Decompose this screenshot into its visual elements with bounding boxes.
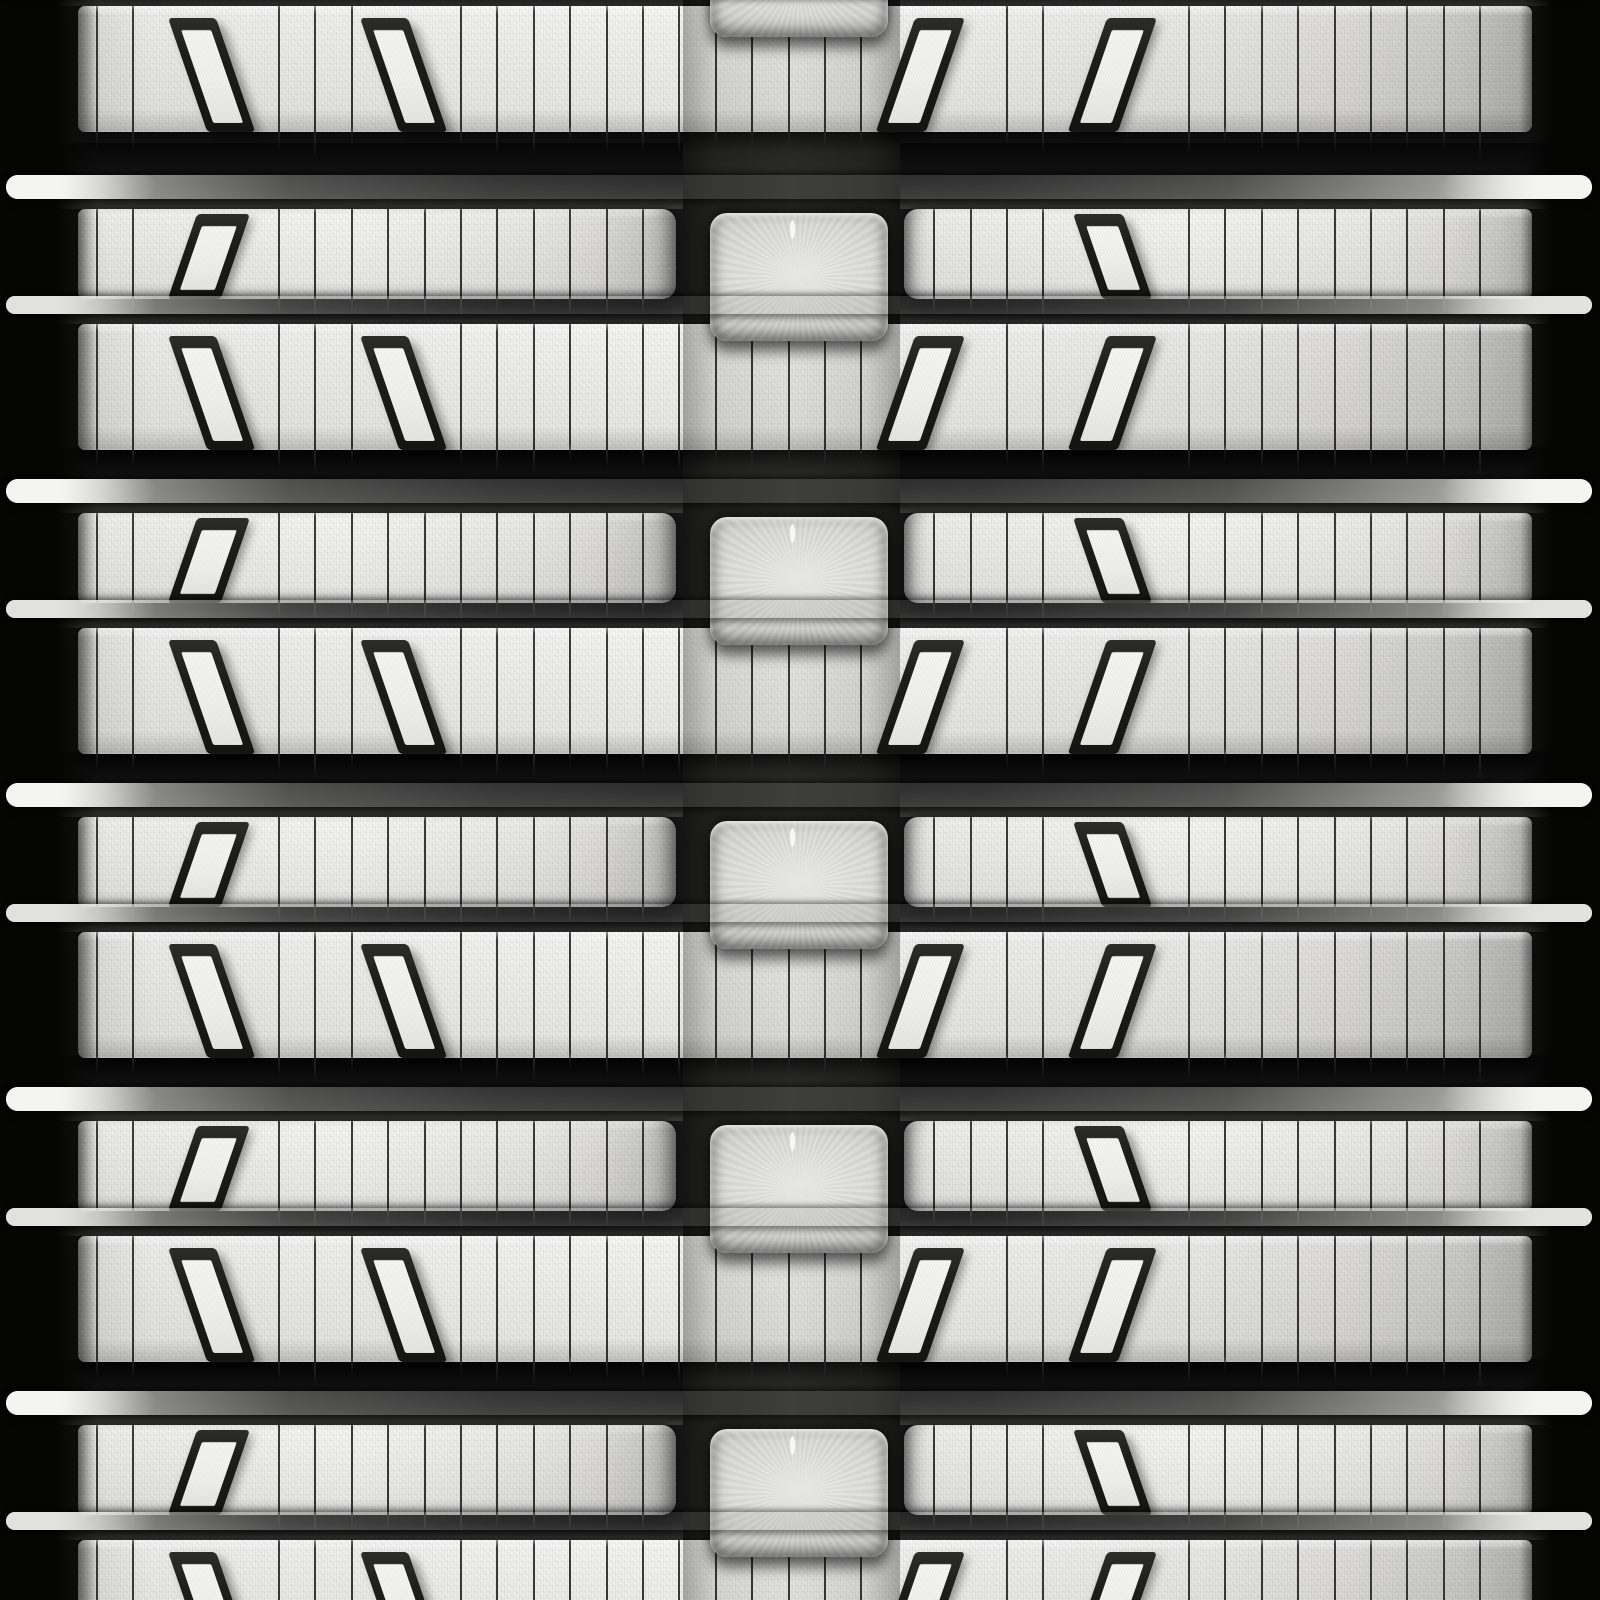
wire-sipe-line: [1006, 616, 1008, 769]
edge-rail-tip-left: [6, 904, 156, 922]
wire-sipe-line: [1370, 924, 1372, 1074]
tread-parallelogram-face: [181, 956, 243, 1049]
tread-parallelogram-cutout: [360, 1248, 447, 1362]
wire-sipe-line: [1479, 1532, 1481, 1600]
wire-sipe-line: [678, 1528, 680, 1600]
wire-sipe-line: [1443, 616, 1445, 772]
tread-parallelogram-face: [1086, 834, 1140, 898]
tread-parallelogram-face: [1080, 1564, 1144, 1600]
edge-rail-tip-left: [6, 479, 156, 503]
lug-edge-rail: [6, 175, 1592, 199]
wire-sipe-line: [569, 920, 571, 1070]
wire-sipe-line: [278, 920, 280, 1076]
rubber-track-photo: [0, 0, 1600, 1600]
wire-sipe-line: [96, 620, 98, 770]
edge-rail-tip-left: [6, 296, 156, 314]
wire-sipe-line: [1370, 620, 1372, 770]
drive-lug-eye-slit: [790, 524, 818, 638]
wire-sipe-line: [715, 924, 717, 1074]
tread-parallelogram-face: [180, 226, 237, 290]
wire-sipe-line: [1443, 1224, 1445, 1380]
wire-sipe-line: [460, 1224, 462, 1377]
wire-sipe-line: [1406, 314, 1408, 467]
wire-sipe-line: [496, 1413, 498, 1527]
track-lug-row-left: [78, 513, 676, 603]
tread-parallelogram-cutout: [1068, 18, 1157, 132]
wire-sipe-line: [533, 314, 535, 473]
wire-sipe-line: [314, 620, 316, 779]
wire-sipe-line: [314, 0, 316, 157]
wire-sipe-line: [1188, 314, 1190, 473]
edge-rail-tip-left: [6, 175, 156, 199]
wire-sipe-line: [496, 620, 498, 776]
wire-sipe-line: [460, 0, 462, 147]
wire-sipe-line: [606, 1532, 608, 1600]
wire-sipe-line: [1479, 924, 1481, 1083]
tread-parallelogram-cutout: [360, 640, 447, 754]
track-lug-row-right: [904, 513, 1532, 603]
wire-sipe-line: [132, 1226, 134, 1379]
wire-sipe-line: [278, 312, 280, 468]
wire-sipe-line: [1006, 312, 1008, 465]
wire-sipe-line: [96, 924, 98, 1074]
wire-sipe-line: [132, 314, 134, 467]
wire-sipe-line: [351, 922, 353, 1072]
wire-sipe-line: [1042, 924, 1044, 1080]
tread-parallelogram-cutout: [168, 822, 250, 907]
wire-sipe-line: [278, 0, 280, 150]
wire-sipe-line: [460, 312, 462, 465]
wire-sipe-line: [1334, 0, 1336, 153]
wire-sipe-line: [1370, 0, 1372, 148]
wire-sipe-line: [1261, 1532, 1263, 1600]
edge-rail-tip-right: [1442, 1391, 1592, 1415]
wire-sipe-line: [314, 316, 316, 475]
tread-parallelogram-face: [373, 348, 435, 441]
track-lug-row-right: [904, 1425, 1532, 1515]
wire-sipe-line: [1334, 312, 1336, 471]
lug-edge-rail: [6, 1512, 1592, 1530]
edge-rail-tip-right: [1442, 1208, 1592, 1226]
tread-parallelogram-face: [1080, 348, 1144, 441]
wire-sipe-line: [1370, 316, 1372, 466]
wire-sipe-line: [1188, 1530, 1190, 1600]
wire-sipe-line: [533, 0, 535, 155]
wire-sipe-line: [1334, 197, 1336, 311]
drive-lug-block: [710, 517, 888, 645]
wire-sipe-line: [278, 1224, 280, 1380]
wire-sipe-line: [278, 1528, 280, 1600]
wire-sipe-line: [1406, 922, 1408, 1075]
wire-sipe-line: [496, 0, 498, 154]
tread-parallelogram-cutout: [168, 18, 255, 132]
wire-sipe-line: [642, 1226, 644, 1382]
wire-sipe-line: [1334, 1528, 1336, 1600]
tread-parallelogram-cutout: [168, 214, 250, 299]
wire-sipe-line: [314, 1532, 316, 1600]
wire-sipe-line: [351, 0, 353, 146]
tread-parallelogram-face: [1086, 1138, 1140, 1202]
tread-parallelogram-face: [1080, 30, 1144, 123]
wire-sipe-line: [1443, 1528, 1445, 1600]
tread-parallelogram-face: [180, 530, 237, 594]
lug-edge-rail: [6, 1087, 1592, 1111]
wire-sipe-line: [1334, 920, 1336, 1079]
wire-sipe-line: [132, 1530, 134, 1600]
wire-sipe-line: [1297, 0, 1299, 152]
wire-sipe-line: [642, 0, 644, 152]
wire-sipe-line: [1042, 1532, 1044, 1600]
wire-sipe-line: [569, 616, 571, 766]
wire-sipe-line: [715, 316, 717, 466]
wire-sipe-line: [1406, 1530, 1408, 1600]
wire-sipe-line: [496, 805, 498, 919]
tread-parallelogram-face: [373, 956, 435, 1049]
wire-sipe-line: [1479, 0, 1481, 157]
wire-sipe-line: [642, 314, 644, 470]
wire-sipe-line: [460, 616, 462, 769]
wire-sipe-line: [1261, 620, 1263, 773]
edge-rail-tip-left: [6, 1208, 156, 1226]
wire-sipe-line: [1224, 616, 1226, 766]
wire-sipe-line: [533, 1530, 535, 1600]
wire-sipe-line: [132, 922, 134, 1075]
wire-sipe-line: [1188, 1226, 1190, 1385]
wire-sipe-line: [1297, 1530, 1299, 1600]
tread-parallelogram-face: [1080, 956, 1144, 1049]
edge-rail-tip-right: [1442, 175, 1592, 199]
tread-parallelogram-face: [373, 1564, 435, 1600]
wire-sipe-line: [351, 1226, 353, 1376]
edge-rail-tip-right: [1442, 1087, 1592, 1111]
tread-parallelogram-cutout: [1068, 1552, 1157, 1600]
tread-parallelogram-face: [180, 834, 237, 898]
wire-sipe-line: [496, 501, 498, 615]
tread-parallelogram-cutout: [168, 1552, 255, 1600]
drive-lug-eye-slit: [790, 0, 818, 30]
tread-parallelogram-cutout: [1073, 822, 1152, 907]
wire-sipe-line: [678, 312, 680, 471]
wire-sipe-line: [642, 922, 644, 1078]
wire-sipe-line: [569, 1528, 571, 1600]
tread-parallelogram-cutout: [1073, 214, 1152, 299]
wire-sipe-line: [1224, 920, 1226, 1070]
wire-sipe-line: [606, 924, 608, 1077]
wire-sipe-line: [1334, 1224, 1336, 1383]
lug-edge-rail: [6, 1208, 1592, 1226]
tread-parallelogram-cutout: [1068, 336, 1157, 450]
wire-sipe-line: [1334, 501, 1336, 615]
wire-sipe-line: [1261, 0, 1263, 151]
wire-sipe-line: [1224, 0, 1226, 144]
track-lug-row-right: [904, 817, 1532, 907]
wire-sipe-line: [1224, 312, 1226, 462]
tread-parallelogram-cutout: [1068, 944, 1157, 1058]
wire-sipe-line: [496, 1228, 498, 1384]
wire-sipe-line: [1042, 1228, 1044, 1384]
tread-parallelogram-cutout: [360, 944, 447, 1058]
wire-sipe-line: [460, 1528, 462, 1600]
tread-parallelogram-face: [180, 1138, 237, 1202]
wire-sipe-line: [1006, 920, 1008, 1073]
tread-parallelogram-face: [373, 30, 435, 123]
wire-sipe-line: [569, 312, 571, 462]
tread-parallelogram-face: [373, 652, 435, 745]
wire-sipe-line: [96, 1228, 98, 1378]
tread-parallelogram-cutout: [168, 640, 255, 754]
wire-sipe-line: [1224, 1528, 1226, 1600]
wire-sipe-line: [351, 618, 353, 768]
wire-sipe-line: [642, 618, 644, 774]
wire-sipe-line: [715, 1228, 717, 1378]
drive-lug-block: [710, 1125, 888, 1253]
wire-sipe-line: [496, 1532, 498, 1600]
wire-sipe-line: [1006, 0, 1008, 147]
wire-sipe-line: [533, 1226, 535, 1385]
wire-sipe-line: [1006, 1224, 1008, 1377]
wire-sipe-line: [606, 620, 608, 773]
tread-parallelogram-cutout: [168, 944, 255, 1058]
drive-lug-block: [710, 213, 888, 341]
wire-sipe-line: [678, 1224, 680, 1383]
edge-rail-tip-left: [6, 1391, 156, 1415]
wire-sipe-line: [1188, 0, 1190, 155]
wire-sipe-line: [1261, 1228, 1263, 1381]
edge-rail-tip-right: [1442, 600, 1592, 618]
tread-parallelogram-cutout: [168, 1430, 250, 1515]
tread-parallelogram-cutout: [1068, 640, 1157, 754]
wire-sipe-line: [1188, 618, 1190, 777]
lug-edge-rail: [6, 479, 1592, 503]
wire-sipe-line: [496, 197, 498, 311]
tread-parallelogram-face: [1086, 530, 1140, 594]
wire-sipe-line: [678, 0, 680, 153]
tread-parallelogram-cutout: [360, 18, 447, 132]
lug-edge-rail: [6, 783, 1592, 807]
lug-edge-rail: [6, 600, 1592, 618]
wire-sipe-line: [1042, 316, 1044, 472]
wire-sipe-line: [1261, 924, 1263, 1077]
edge-rail-tip-right: [1442, 904, 1592, 922]
wire-sipe-line: [1406, 0, 1408, 149]
track-lug-row-left: [78, 1425, 676, 1515]
wire-sipe-line: [1479, 620, 1481, 779]
track-lug-row-full: [78, 1236, 1532, 1362]
drive-lug-block: [710, 0, 888, 37]
tread-parallelogram-cutout: [168, 1126, 250, 1211]
wire-sipe-line: [678, 920, 680, 1079]
drive-lug-eye-slit: [790, 828, 818, 942]
wire-sipe-line: [1042, 620, 1044, 776]
wire-sipe-line: [715, 620, 717, 770]
tread-parallelogram-face: [181, 652, 243, 745]
tread-parallelogram-cutout: [1073, 1126, 1152, 1211]
tread-parallelogram-cutout: [1073, 1430, 1152, 1515]
wire-sipe-line: [1297, 922, 1299, 1078]
wire-sipe-line: [533, 618, 535, 777]
wire-sipe-line: [351, 1530, 353, 1600]
wire-sipe-line: [1370, 1532, 1372, 1600]
tread-parallelogram-face: [1080, 1260, 1144, 1353]
track-lug-row-full: [78, 628, 1532, 754]
wire-sipe-line: [96, 1532, 98, 1600]
wire-sipe-line: [678, 616, 680, 775]
tread-parallelogram-face: [180, 1442, 237, 1506]
tread-parallelogram-cutout: [1073, 518, 1152, 603]
drive-lug-eye-slit: [790, 1132, 818, 1246]
wire-sipe-line: [1334, 1413, 1336, 1527]
wire-sipe-line: [132, 618, 134, 771]
wire-sipe-line: [496, 316, 498, 472]
wire-sipe-line: [496, 1109, 498, 1223]
wire-sipe-line: [1042, 0, 1044, 154]
track-lug-row-right: [904, 1121, 1532, 1211]
drive-lug-eye-slit: [790, 220, 818, 334]
wire-sipe-line: [1224, 1224, 1226, 1374]
wire-sipe-line: [1006, 1528, 1008, 1600]
tread-parallelogram-face: [181, 30, 243, 123]
lug-edge-rail: [6, 904, 1592, 922]
edge-rail-tip-left: [6, 600, 156, 618]
lug-edge-rail: [6, 1391, 1592, 1415]
wire-sipe-line: [1443, 920, 1445, 1076]
wire-sipe-line: [606, 1228, 608, 1381]
tread-parallelogram-cutout: [360, 1552, 447, 1600]
wire-sipe-line: [1297, 618, 1299, 774]
wire-sipe-line: [1297, 314, 1299, 470]
wire-sipe-line: [278, 616, 280, 772]
wire-sipe-line: [1334, 805, 1336, 919]
tread-parallelogram-cutout: [168, 518, 250, 603]
wire-sipe-line: [1479, 1228, 1481, 1387]
wire-sipe-line: [314, 924, 316, 1083]
tread-parallelogram-cutout: [168, 336, 255, 450]
tread-parallelogram-face: [1086, 1442, 1140, 1506]
edge-rail-tip-left: [6, 1087, 156, 1111]
wire-sipe-line: [606, 0, 608, 151]
wire-sipe-line: [314, 1228, 316, 1387]
edge-rail-tip-left: [6, 783, 156, 807]
wire-sipe-line: [1479, 316, 1481, 475]
wire-sipe-line: [569, 1224, 571, 1374]
wire-sipe-line: [1334, 1109, 1336, 1223]
drive-lug-block: [710, 1429, 888, 1557]
track-lug-row-full: [78, 932, 1532, 1058]
wire-sipe-line: [606, 316, 608, 469]
lug-edge-rail: [6, 296, 1592, 314]
track-lug-row-left: [78, 817, 676, 907]
wire-sipe-line: [1406, 618, 1408, 771]
tread-parallelogram-face: [181, 1564, 243, 1600]
wire-sipe-line: [1297, 1226, 1299, 1382]
wire-sipe-line: [132, 0, 134, 149]
edge-rail-tip-left: [6, 1512, 156, 1530]
edge-rail-tip-right: [1442, 296, 1592, 314]
wire-sipe-line: [1261, 316, 1263, 469]
tread-parallelogram-face: [373, 1260, 435, 1353]
wire-sipe-line: [533, 922, 535, 1081]
wire-sipe-line: [642, 1530, 644, 1600]
drive-lug-block: [710, 821, 888, 949]
track-lug-row-right: [904, 209, 1532, 299]
tread-parallelogram-cutout: [168, 1248, 255, 1362]
tread-parallelogram-face: [181, 348, 243, 441]
wire-sipe-line: [96, 0, 98, 148]
track-lug-row-left: [78, 209, 676, 299]
tread-parallelogram-cutout: [1068, 1248, 1157, 1362]
wire-sipe-line: [96, 316, 98, 466]
tread-parallelogram-face: [181, 1260, 243, 1353]
tread-parallelogram-face: [1080, 652, 1144, 745]
wire-sipe-line: [1334, 616, 1336, 775]
wire-sipe-line: [496, 924, 498, 1080]
edge-rail-tip-right: [1442, 479, 1592, 503]
wire-sipe-line: [460, 920, 462, 1073]
track-lug-row-left: [78, 1121, 676, 1211]
wire-sipe-line: [1370, 1228, 1372, 1378]
tread-parallelogram-face: [1086, 226, 1140, 290]
wire-sipe-line: [1443, 312, 1445, 468]
wire-sipe-line: [1406, 1226, 1408, 1379]
track-lug-row-full: [78, 324, 1532, 450]
wire-sipe-line: [1443, 0, 1445, 150]
tread-parallelogram-cutout: [360, 336, 447, 450]
wire-sipe-line: [351, 314, 353, 464]
drive-lug-eye-slit: [790, 1436, 818, 1550]
edge-rail-tip-right: [1442, 783, 1592, 807]
wire-sipe-line: [569, 0, 571, 144]
edge-rail-tip-right: [1442, 1512, 1592, 1530]
wire-sipe-line: [1188, 922, 1190, 1081]
